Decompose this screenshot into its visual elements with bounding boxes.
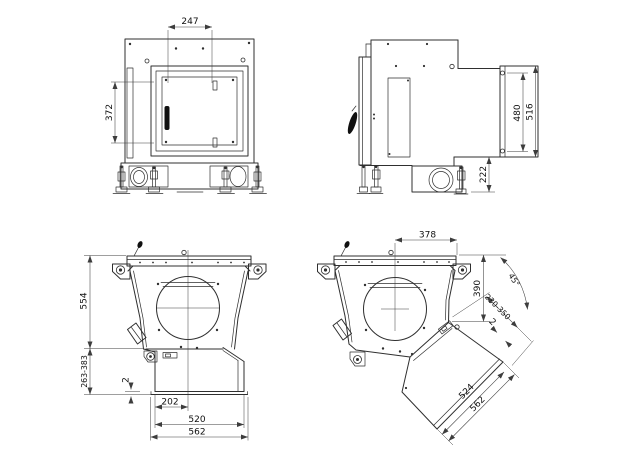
side-bracket [128, 323, 147, 344]
dim-adjustable-length: 230-350 [483, 292, 512, 321]
door-latch-handle [165, 106, 170, 130]
name-plate [438, 321, 453, 334]
bottom-view-angled: 378 390 45° 230-350 2 524 562 [318, 231, 534, 446]
dim-front-opening-height: 372 [105, 104, 115, 121]
door-handle [346, 111, 359, 135]
dim-body-height: 554 [80, 292, 90, 309]
side-body-outline [346, 40, 538, 194]
levelling-foot [357, 166, 370, 194]
dim-centre-to-edge: 378 [419, 231, 436, 241]
dim-front-opening-width: 247 [181, 17, 198, 27]
dim-plate-gap: 2 [486, 317, 497, 328]
front-body-outline [125, 39, 254, 163]
lifting-point [389, 250, 393, 254]
dim-inner-width: 520 [188, 415, 205, 425]
levelling-foot [454, 167, 468, 194]
dim-overall-width: 562 [468, 395, 487, 414]
dim-spigot-inner-height: 480 [513, 104, 523, 121]
side-view: 480 516 222 [346, 40, 538, 194]
angled-chute [402, 321, 503, 429]
caster-wheel [230, 167, 246, 187]
dim-spigot-outer-height: 516 [526, 103, 536, 120]
front-dimensions: 247 372 [105, 17, 212, 143]
straight-dimensions: 554 263-383 2 202 520 562 [80, 256, 249, 441]
levelling-foot [369, 166, 383, 194]
dim-centre-offset: 202 [161, 398, 178, 408]
front-view: 247 372 [105, 17, 267, 194]
angled-dimensions: 378 390 45° 230-350 2 524 562 [395, 231, 534, 446]
bottom-view-straight: 554 263-383 2 202 520 562 [80, 240, 267, 440]
straight-body-outline [113, 240, 267, 411]
name-plate [163, 353, 177, 359]
dim-adjustable-height: 263-383 [80, 355, 89, 388]
technical-drawing: 247 372 [0, 0, 624, 460]
dim-plate-gap: 2 [122, 377, 132, 383]
technical-drawing-canvas: 247 372 [0, 0, 624, 460]
front-door-panel [162, 77, 237, 145]
straight-chute [144, 348, 248, 395]
side-dimensions: 480 516 222 [471, 66, 536, 192]
dim-outlet-bottom-offset: 222 [479, 166, 489, 183]
release-knob [136, 240, 143, 248]
dim-flange-height: 390 [473, 280, 483, 297]
lifting-point [182, 250, 186, 254]
side-bracket [333, 319, 352, 340]
angled-body-outline [318, 240, 471, 366]
release-knob [343, 240, 350, 248]
dim-chute-angle: 45° [506, 272, 521, 289]
front-base [113, 163, 267, 194]
dim-overall-width: 562 [188, 428, 205, 438]
